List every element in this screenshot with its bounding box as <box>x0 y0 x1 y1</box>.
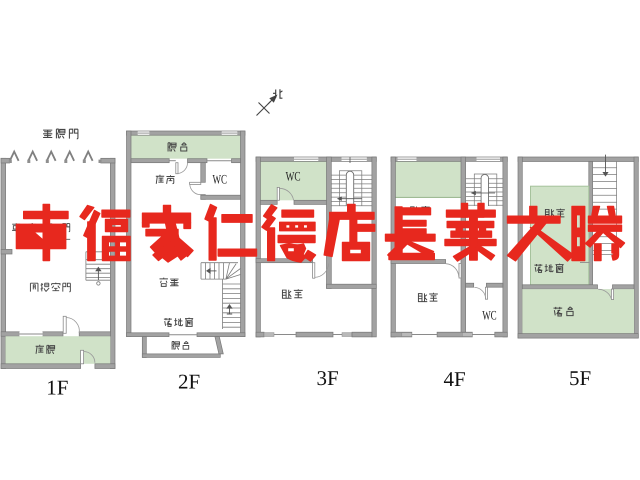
svg-text:2F: 2F <box>178 370 200 394</box>
svg-text:WC: WC <box>286 169 301 184</box>
svg-text:WC: WC <box>213 172 228 187</box>
svg-text:3F: 3F <box>317 366 339 390</box>
svg-text:WC: WC <box>482 307 497 322</box>
svg-text:1F: 1F <box>46 376 68 400</box>
svg-text:4F: 4F <box>444 367 466 391</box>
svg-text:5F: 5F <box>569 366 591 390</box>
